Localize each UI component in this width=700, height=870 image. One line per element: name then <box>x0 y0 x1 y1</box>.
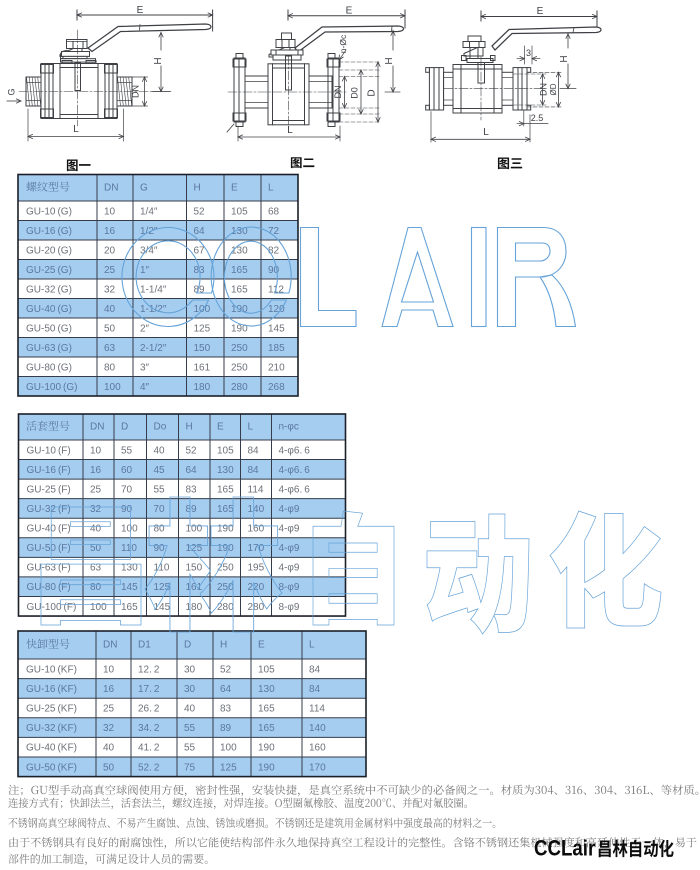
svg-text:GU-50 (F): GU-50 (F) <box>27 543 71 554</box>
svg-text:2-1/2″: 2-1/2″ <box>140 343 167 354</box>
svg-text:GU-32 (F): GU-32 (F) <box>27 504 71 515</box>
svg-text:CCLair: CCLair <box>534 837 595 861</box>
svg-text:H: H <box>384 57 395 64</box>
svg-text:50: 50 <box>104 323 116 334</box>
svg-text:190: 190 <box>217 543 234 554</box>
svg-text:G: G <box>7 88 17 95</box>
svg-text:GU-16 (KF): GU-16 (KF) <box>26 684 77 695</box>
svg-text:GU-25 (KF): GU-25 (KF) <box>26 704 77 715</box>
svg-text:114: 114 <box>248 484 264 495</box>
svg-text:Do: Do <box>154 422 167 433</box>
svg-text:DN: DN <box>90 422 104 433</box>
svg-text:25: 25 <box>90 484 102 495</box>
svg-text:GU-100 (G): GU-100 (G) <box>26 382 77 393</box>
svg-text:140: 140 <box>309 723 326 734</box>
svg-text:125: 125 <box>186 543 203 554</box>
svg-text:161: 161 <box>194 362 211 373</box>
svg-text:GU-25 (F): GU-25 (F) <box>27 484 71 495</box>
svg-text:75: 75 <box>184 762 196 773</box>
svg-text:150: 150 <box>194 343 211 354</box>
svg-text:E: E <box>258 640 265 651</box>
svg-text:DN: DN <box>131 85 141 98</box>
svg-text:L: L <box>73 124 79 135</box>
svg-text:34. 2: 34. 2 <box>138 723 160 734</box>
svg-text:83: 83 <box>220 704 232 715</box>
svg-text:4-φ6. 6: 4-φ6. 6 <box>279 445 311 456</box>
svg-text:100: 100 <box>121 524 138 535</box>
svg-text:L: L <box>287 125 293 136</box>
svg-text:GU-80 (F): GU-80 (F) <box>27 582 71 593</box>
svg-text:GU-10 (KF): GU-10 (KF) <box>26 664 77 675</box>
svg-text:3″: 3″ <box>140 362 150 373</box>
svg-text:GU-10 (F): GU-10 (F) <box>27 445 71 456</box>
svg-text:10: 10 <box>104 206 116 217</box>
svg-text:170: 170 <box>309 762 326 773</box>
svg-text:190: 190 <box>231 323 248 334</box>
svg-text:E: E <box>217 422 224 433</box>
svg-text:4-φ9: 4-φ9 <box>279 524 300 535</box>
svg-text:80: 80 <box>104 362 116 373</box>
svg-text:4-φ6. 6: 4-φ6. 6 <box>279 484 311 495</box>
svg-text:180: 180 <box>186 602 203 613</box>
svg-text:55: 55 <box>184 743 196 754</box>
svg-text:GU-63 (G): GU-63 (G) <box>26 343 72 354</box>
svg-text:10: 10 <box>103 664 115 675</box>
svg-text:82: 82 <box>268 245 280 256</box>
svg-text:55: 55 <box>121 445 133 456</box>
svg-text:130: 130 <box>217 465 234 476</box>
svg-text:n-φc: n-φc <box>279 422 299 433</box>
svg-text:20: 20 <box>104 245 116 256</box>
svg-text:63: 63 <box>104 343 116 354</box>
svg-text:140: 140 <box>248 504 265 515</box>
svg-text:165: 165 <box>231 265 248 276</box>
svg-text:160: 160 <box>309 743 326 754</box>
svg-text:GU-50 (KF): GU-50 (KF) <box>26 762 77 773</box>
svg-text:52: 52 <box>220 664 232 675</box>
svg-text:110: 110 <box>154 563 170 574</box>
svg-text:DN: DN <box>333 86 343 99</box>
svg-text:110: 110 <box>121 543 137 554</box>
svg-text:GU-40 (F): GU-40 (F) <box>27 524 71 535</box>
svg-text:GU-16 (F): GU-16 (F) <box>27 465 71 476</box>
svg-text:50: 50 <box>103 762 115 773</box>
svg-text:H: H <box>194 182 201 193</box>
svg-text:8-φ9: 8-φ9 <box>279 602 300 613</box>
svg-text:83: 83 <box>186 484 198 495</box>
svg-text:210: 210 <box>268 362 285 373</box>
svg-text:105: 105 <box>217 445 234 456</box>
svg-text:D1: D1 <box>138 640 151 651</box>
svg-text:H: H <box>220 640 227 651</box>
svg-text:165: 165 <box>217 484 234 495</box>
svg-text:40: 40 <box>104 304 116 315</box>
svg-text:41. 2: 41. 2 <box>138 743 160 754</box>
svg-text:4-φ9: 4-φ9 <box>279 543 300 554</box>
svg-text:H: H <box>186 422 193 433</box>
svg-text:32: 32 <box>90 504 102 515</box>
svg-text:25: 25 <box>104 265 116 276</box>
svg-text:268: 268 <box>268 382 285 393</box>
svg-text:DN: DN <box>539 83 549 96</box>
svg-text:E: E <box>346 6 353 17</box>
svg-text:68: 68 <box>268 206 280 217</box>
svg-text:32: 32 <box>103 723 115 734</box>
svg-text:52. 2: 52. 2 <box>138 762 160 773</box>
svg-text:30: 30 <box>184 664 196 675</box>
svg-text:165: 165 <box>231 284 248 295</box>
svg-text:160: 160 <box>248 524 265 535</box>
svg-text:190: 190 <box>217 524 234 535</box>
svg-text:8-φ9: 8-φ9 <box>279 582 300 593</box>
svg-text:L: L <box>268 182 274 193</box>
svg-text:3: 3 <box>526 48 531 58</box>
svg-text:100: 100 <box>104 382 121 393</box>
svg-text:114: 114 <box>309 704 325 715</box>
svg-text:185: 185 <box>268 343 285 354</box>
svg-text:55: 55 <box>184 723 196 734</box>
svg-text:26. 2: 26. 2 <box>138 704 160 715</box>
svg-text:170: 170 <box>248 543 265 554</box>
svg-text:100: 100 <box>186 524 203 535</box>
svg-text:D: D <box>367 89 378 96</box>
svg-text:64: 64 <box>194 226 206 237</box>
svg-text:10: 10 <box>90 445 102 456</box>
svg-text:280: 280 <box>231 382 248 393</box>
svg-text:L: L <box>483 127 489 138</box>
svg-text:89: 89 <box>186 504 198 515</box>
svg-text:40: 40 <box>154 445 166 456</box>
svg-text:2″: 2″ <box>140 323 150 334</box>
svg-text:120: 120 <box>268 304 285 315</box>
svg-text:125: 125 <box>220 762 237 773</box>
svg-text:GU-50 (G): GU-50 (G) <box>26 323 72 334</box>
svg-text:16: 16 <box>103 684 115 695</box>
svg-text:25: 25 <box>103 704 115 715</box>
svg-text:DN: DN <box>103 640 117 651</box>
svg-text:250: 250 <box>231 343 248 354</box>
svg-text:190: 190 <box>258 762 275 773</box>
svg-text:165: 165 <box>258 704 275 715</box>
svg-text:67: 67 <box>194 245 206 256</box>
svg-text:4-φ9: 4-φ9 <box>279 563 300 574</box>
svg-text:195: 195 <box>248 563 265 574</box>
svg-text:2.5: 2.5 <box>531 113 544 123</box>
svg-text:100: 100 <box>220 743 237 754</box>
svg-text:52: 52 <box>194 206 206 217</box>
svg-text:40: 40 <box>90 524 102 535</box>
svg-text:250: 250 <box>231 362 248 373</box>
svg-text:GU-32 (G): GU-32 (G) <box>26 284 72 295</box>
svg-text:GU-40 (KF): GU-40 (KF) <box>26 743 77 754</box>
svg-text:64: 64 <box>220 684 232 695</box>
svg-text:52: 52 <box>186 445 198 456</box>
svg-text:105: 105 <box>231 206 248 217</box>
svg-text:GU-80 (G): GU-80 (G) <box>26 362 72 373</box>
svg-text:H: H <box>559 55 570 62</box>
svg-text:84: 84 <box>309 684 321 695</box>
svg-text:125: 125 <box>194 323 211 334</box>
svg-text:80: 80 <box>154 524 166 535</box>
svg-text:16: 16 <box>90 465 102 476</box>
svg-text:64: 64 <box>186 465 198 476</box>
svg-text:GU-100 (F): GU-100 (F) <box>27 602 77 613</box>
svg-text:40: 40 <box>184 704 196 715</box>
svg-text:H: H <box>153 57 164 64</box>
svg-text:L: L <box>309 640 315 651</box>
svg-text:105: 105 <box>258 664 275 675</box>
svg-text:55: 55 <box>154 484 166 495</box>
svg-text:100: 100 <box>90 602 107 613</box>
svg-text:145: 145 <box>268 323 285 334</box>
svg-text:45: 45 <box>154 465 166 476</box>
svg-text:4″: 4″ <box>140 382 150 393</box>
svg-text:165: 165 <box>121 602 138 613</box>
svg-text:89: 89 <box>220 723 232 734</box>
svg-text:84: 84 <box>248 465 260 476</box>
svg-text:280: 280 <box>248 602 265 613</box>
svg-text:32: 32 <box>104 284 116 295</box>
svg-text:n-Øc: n-Øc <box>338 34 348 53</box>
svg-text:GU-32 (KF): GU-32 (KF) <box>26 723 77 734</box>
svg-text:165: 165 <box>217 504 234 515</box>
svg-text:70: 70 <box>154 504 166 515</box>
svg-text:190: 190 <box>258 743 275 754</box>
svg-text:30: 30 <box>184 684 196 695</box>
svg-text:130: 130 <box>258 684 275 695</box>
svg-text:145: 145 <box>121 582 138 593</box>
svg-text:16: 16 <box>104 226 116 237</box>
svg-text:GU-10 (G): GU-10 (G) <box>26 206 72 217</box>
svg-text:GU-20 (G): GU-20 (G) <box>26 245 72 256</box>
svg-text:G: G <box>140 182 148 193</box>
svg-text:1/4″: 1/4″ <box>140 206 158 217</box>
svg-text:1″: 1″ <box>140 265 150 276</box>
svg-text:165: 165 <box>258 723 275 734</box>
svg-text:GU-16 (G): GU-16 (G) <box>26 226 72 237</box>
svg-text:L: L <box>248 422 254 433</box>
svg-text:84: 84 <box>248 445 260 456</box>
svg-text:80: 80 <box>90 582 102 593</box>
svg-text:84: 84 <box>309 664 321 675</box>
svg-text:E: E <box>537 6 544 17</box>
svg-text:E: E <box>231 182 238 193</box>
svg-text:4-φ6. 6: 4-φ6. 6 <box>279 465 311 476</box>
svg-text:40: 40 <box>103 743 115 754</box>
svg-text:70: 70 <box>121 484 133 495</box>
svg-text:12. 2: 12. 2 <box>138 664 160 675</box>
svg-text:100: 100 <box>194 304 211 315</box>
svg-text:17. 2: 17. 2 <box>138 684 160 695</box>
svg-text:D0: D0 <box>350 87 360 99</box>
svg-text:ØD: ØD <box>549 83 558 95</box>
svg-text:E: E <box>137 5 144 16</box>
svg-text:161: 161 <box>186 582 203 593</box>
svg-text:90: 90 <box>154 543 166 554</box>
svg-text:60: 60 <box>121 465 133 476</box>
svg-text:180: 180 <box>194 382 211 393</box>
svg-text:4-φ9: 4-φ9 <box>279 504 300 515</box>
svg-text:1-1/4″: 1-1/4″ <box>140 284 167 295</box>
svg-text:GU-25 (G): GU-25 (G) <box>26 265 72 276</box>
svg-text:150: 150 <box>186 563 203 574</box>
svg-text:DN: DN <box>104 182 118 193</box>
svg-text:GU-40 (G): GU-40 (G) <box>26 304 72 315</box>
svg-text:D: D <box>184 640 191 651</box>
svg-text:D: D <box>121 422 128 433</box>
